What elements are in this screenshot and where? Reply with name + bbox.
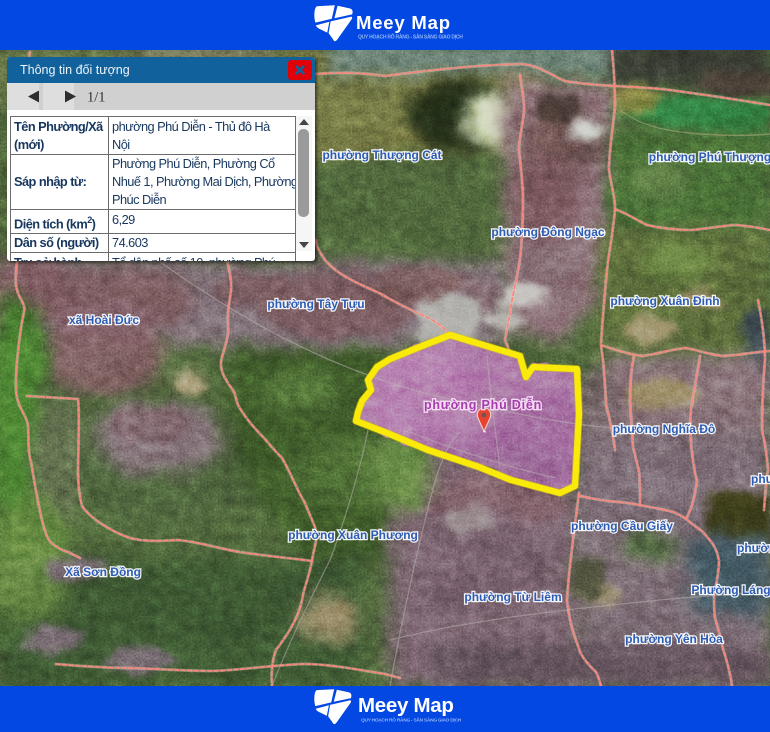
svg-text:Xã Sơn Đồng: Xã Sơn Đồng xyxy=(65,565,141,579)
svg-text:phường Tây Tựu: phường Tây Tựu xyxy=(267,297,364,311)
svg-text:phường Xuân Đỉnh: phường Xuân Đỉnh xyxy=(610,294,719,308)
svg-text:phường Từ Liêm: phường Từ Liêm xyxy=(464,590,561,604)
svg-text:Meey Map: Meey Map xyxy=(358,694,454,717)
svg-text:phường Xuân Phương: phường Xuân Phương xyxy=(288,528,418,542)
svg-text:QUY HOẠCH RÕ RÀNG - SẴN SÀNG G: QUY HOẠCH RÕ RÀNG - SẴN SÀNG GIAO DỊCH xyxy=(358,34,463,41)
svg-text:xã Hoài Đức: xã Hoài Đức xyxy=(69,313,139,327)
svg-text:phường Yên Hòa: phường Yên Hòa xyxy=(625,632,723,646)
svg-text:QUY HOẠCH RÕ RÀNG - SẴN SÀNG G: QUY HOẠCH RÕ RÀNG - SẴN SÀNG GIAO DỊCH xyxy=(361,717,462,724)
svg-text:Meey Map: Meey Map xyxy=(356,12,451,33)
svg-text:phường Cầu Giấy: phường Cầu Giấy xyxy=(571,519,673,533)
svg-text:phường Đông Ngạc: phường Đông Ngạc xyxy=(491,225,605,239)
svg-text:phường Phú Thượng: phường Phú Thượng xyxy=(649,150,770,164)
svg-text:1/1: 1/1 xyxy=(87,90,106,106)
svg-text:phường Nghĩa Đô: phường Nghĩa Đô xyxy=(613,422,716,436)
svg-text:Phường Láng: Phường Láng xyxy=(691,583,770,597)
svg-text:phường Phú Diễn: phường Phú Diễn xyxy=(424,397,542,412)
svg-text:phường Thượng Cát: phường Thượng Cát xyxy=(322,148,441,162)
svg-text:phường: phường xyxy=(751,472,770,486)
svg-text:phường: phường xyxy=(737,541,770,555)
